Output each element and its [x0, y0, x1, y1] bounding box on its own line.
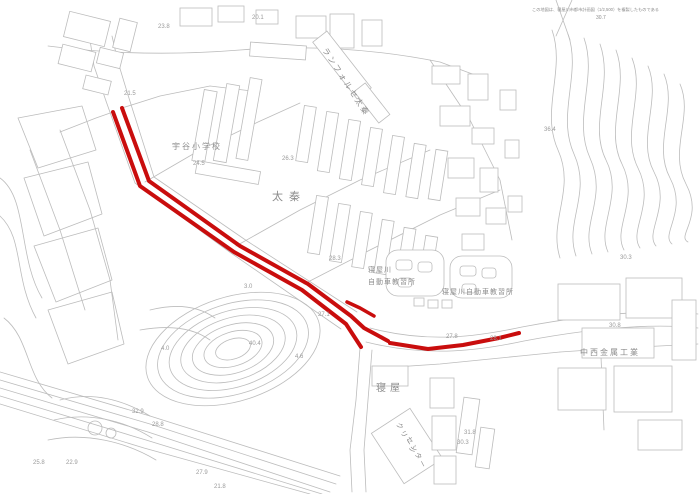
- elevation-point-label: 26.3: [282, 156, 294, 162]
- map-canvas: この地図は、寝屋川市都市計画図（1/2,500）を複製したものである30.7宇谷…: [0, 0, 700, 494]
- map-viewport: この地図は、寝屋川市都市計画図（1/2,500）を複製したものである30.7宇谷…: [0, 0, 700, 494]
- elevation-point-label: 23.8: [158, 24, 170, 30]
- elevation-point-label: 24.5: [193, 161, 205, 167]
- elevation-point-label: 36.4: [544, 127, 556, 133]
- elevation-point-label: 28.3: [329, 256, 341, 262]
- elevation-point-label: 4.6: [295, 354, 304, 360]
- label-neyagawa-driving-school: 寝屋川自動車教習所: [442, 287, 514, 296]
- elevation-point-label: 27.8: [446, 334, 458, 340]
- building-outlines: [58, 6, 696, 484]
- elevation-point-label: 21.8: [214, 484, 226, 490]
- elevation-point-label: 30.3: [457, 440, 469, 446]
- elevation-point-label: 20.1: [252, 15, 264, 21]
- elevation-point-label: 30.3: [620, 255, 632, 261]
- elevation-point-label: 32.9: [132, 409, 144, 415]
- elevation-point-label: 4.0: [161, 346, 170, 352]
- label-uzumasa: 太秦: [272, 189, 306, 203]
- elevation-point-label: 27.9: [196, 470, 208, 476]
- elevation-point-label: 28.8: [152, 422, 164, 428]
- label-neyagawa-driving-school-line1: 寝屋川: [368, 265, 392, 274]
- elevation-point-label: 27.1: [318, 312, 330, 318]
- elevation-point-label: 3.0: [244, 284, 253, 290]
- elevation-point-label: 40.4: [249, 341, 261, 347]
- label-nakanishi-metal-works: 中西金属工業: [580, 347, 640, 357]
- elevation-point-label: 25.8: [33, 460, 45, 466]
- elevation-point-label: 30.8: [609, 323, 621, 329]
- elevation-point-label: 21.5: [124, 91, 136, 97]
- map-reference-text: この地図は、寝屋川市都市計画図（1/2,500）を複製したものである: [532, 6, 659, 13]
- elevation-point-label: 28.1: [490, 336, 502, 342]
- label-neya: 寝屋: [376, 381, 404, 394]
- label-udani-elementary-school: 宇谷小学校: [172, 141, 222, 151]
- elevation-30-7: 30.7: [596, 15, 606, 21]
- elevation-point-label: 22.9: [66, 460, 78, 466]
- elevation-point-label: 31.8: [464, 430, 476, 436]
- label-neyagawa-driving-school-line2: 自動車教習所: [368, 277, 416, 286]
